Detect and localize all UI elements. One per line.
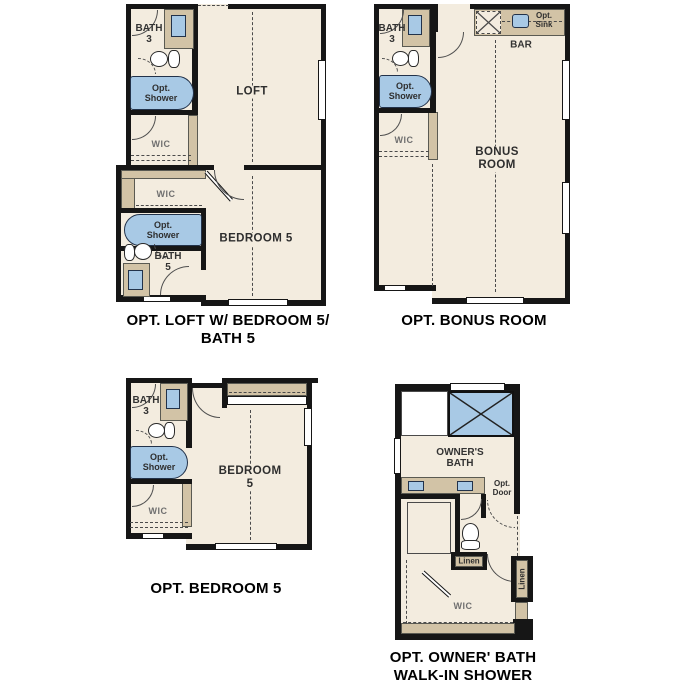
plan-loft-bedroom5-bath5: BATH 3 Opt. Shower WIC LOFT WIC Opt. Sho… (116, 4, 340, 312)
room-label-wic: WIC (157, 189, 176, 199)
plan-owners-bath: OWNER'S BATH Opt. Door Linen Linen WIC (393, 382, 543, 648)
toilet-icon (148, 423, 165, 438)
window (142, 533, 164, 539)
room-label-wic: WIC (149, 506, 168, 516)
closet-rod-dashed (130, 527, 188, 528)
window (228, 299, 288, 306)
closet-rod-dashed (403, 622, 513, 623)
plan-caption: OPT. LOFT W/ BEDROOM 5/ BATH 5 (110, 312, 346, 347)
wall (481, 494, 486, 518)
closet-shelf-outline (407, 502, 451, 554)
wall (126, 479, 192, 484)
opt-shower-label: Opt. Shower (389, 81, 422, 101)
opt-door-label: Opt. Door (493, 480, 512, 498)
linen-label: Linen (518, 568, 527, 589)
window (562, 60, 570, 120)
room-label-bath3: BATH 3 (132, 395, 159, 417)
sink-icon (408, 15, 422, 35)
window (466, 297, 524, 304)
window (304, 408, 312, 446)
wall (455, 494, 460, 556)
room-label-bedroom5: BEDROOM 5 (217, 465, 284, 491)
plan-bedroom5: BATH 3 Opt. Shower WIC BEDROOM 5 (116, 378, 316, 604)
window (394, 438, 401, 474)
bar-label: BAR (510, 39, 532, 50)
toilet-icon (168, 50, 180, 68)
closet-rod-dashed (131, 160, 191, 161)
window (562, 182, 570, 234)
wall (244, 165, 323, 170)
linen-label: Linen (458, 558, 479, 567)
room-label-wic: WIC (454, 601, 473, 611)
opt-shower-label: Opt. Shower (145, 83, 178, 103)
shower-x-icon (448, 391, 514, 437)
wall (374, 4, 379, 290)
room-label-loft: LOFT (234, 86, 270, 99)
counter-dashed (502, 21, 562, 22)
closet-rod-dashed (131, 155, 191, 156)
sink-icon (512, 14, 529, 28)
closet-cabinet (401, 623, 515, 634)
wall (565, 4, 570, 304)
closet-nook (401, 391, 448, 436)
wall (395, 384, 401, 634)
window (318, 60, 326, 120)
wall (514, 384, 520, 514)
closet-cabinet (227, 383, 307, 396)
closet-rod-dashed (406, 560, 407, 624)
toilet-icon (164, 422, 175, 439)
wall (121, 208, 206, 213)
wall (228, 4, 326, 9)
hatch-x-icon (476, 11, 501, 34)
plan-caption: OPT. BEDROOM 5 (110, 580, 322, 598)
closet-cabinet (428, 112, 438, 160)
sink-icon (457, 481, 473, 491)
opt-shower-label: Opt. Shower (143, 452, 176, 472)
window (384, 285, 406, 291)
closet-rod-dashed (379, 156, 429, 157)
wall (374, 108, 436, 113)
closet-cabinet (182, 481, 192, 527)
room-label-owners-bath: OWNER'S BATH (436, 447, 483, 469)
wall (321, 4, 326, 306)
sink-icon (128, 270, 143, 290)
wall (126, 110, 198, 115)
wall (432, 4, 438, 32)
room-label-wic: WIC (395, 135, 414, 145)
floorplan-sheet: BATH 3 Opt. Shower WIC LOFT WIC Opt. Sho… (0, 0, 687, 687)
toilet-icon (408, 50, 419, 67)
closet-cabinet (121, 170, 206, 179)
sink-icon (166, 389, 180, 409)
plan-bonus-room: Opt. Sink BAR BATH 3 Opt. Shower WIC BON… (374, 4, 574, 312)
floor-area (374, 160, 436, 290)
plan-caption: OPT. OWNER' BATH WALK-IN SHOWER (380, 649, 546, 684)
toilet-icon (461, 540, 480, 550)
wall (307, 378, 312, 550)
sink-icon (171, 15, 186, 37)
closet-sliding-door (227, 396, 307, 405)
room-label-bath3: BATH 3 (378, 23, 405, 45)
closet-rod-dashed (229, 392, 305, 393)
closet-rod-dashed (130, 522, 188, 523)
wall-corner-block (513, 619, 533, 637)
room-label-bedroom5: BEDROOM 5 (217, 233, 294, 246)
room-divider-dashed (432, 164, 433, 286)
dashed-opening (198, 5, 229, 6)
room-label-bonus: BONUS ROOM (473, 146, 521, 172)
room-label-bath3: BATH 3 (135, 23, 162, 45)
opt-sink-label: Opt. Sink (536, 12, 553, 30)
window (215, 543, 277, 550)
closet-rod-dashed (379, 151, 429, 152)
room-label-wic: WIC (152, 139, 171, 149)
sink-icon (408, 481, 424, 491)
window (450, 383, 505, 391)
wall-dashed (517, 516, 518, 556)
opt-shower-label: Opt. Shower (147, 220, 180, 240)
toilet-icon (134, 243, 152, 260)
closet-rod-dashed (136, 205, 202, 206)
plan-caption: OPT. BONUS ROOM (368, 312, 580, 330)
wall (395, 494, 455, 499)
